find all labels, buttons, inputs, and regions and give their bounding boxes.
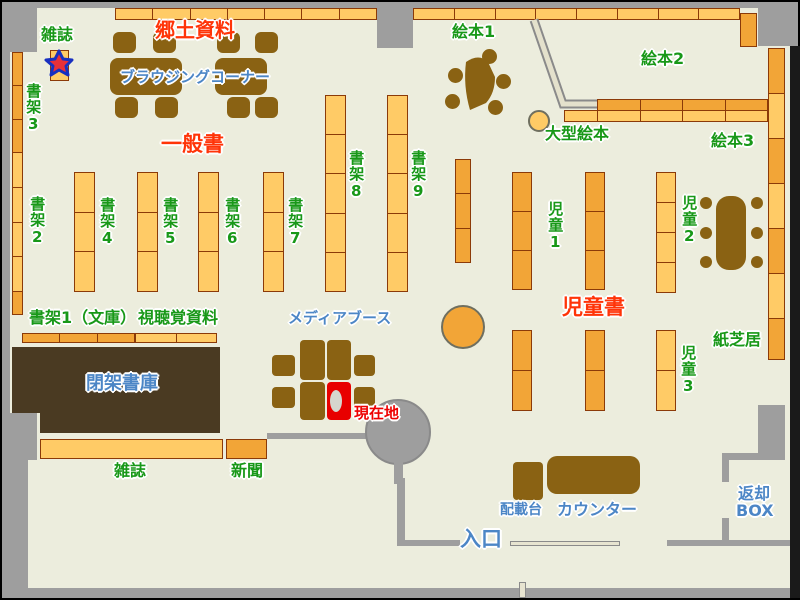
label-ippansho: 一般書 bbox=[161, 133, 224, 156]
label-shoka2: 書架2 bbox=[29, 196, 45, 247]
shelf-row-bunko-seg bbox=[22, 333, 60, 343]
shelf-wall-left-b-seg bbox=[12, 222, 23, 258]
shelf-wall-left-a bbox=[12, 52, 23, 153]
shelf-top-row-endcap-seg bbox=[740, 13, 757, 47]
shelf-top-row-right-seg bbox=[495, 8, 537, 20]
shelf-top-row-right-seg bbox=[576, 8, 618, 20]
shelf-kids-2-lower-seg bbox=[585, 370, 605, 411]
shelf-col-7-seg bbox=[263, 172, 284, 213]
shelf-wall-right-6-seg bbox=[768, 273, 785, 319]
shelf-ehon-divider-bottom-seg bbox=[682, 110, 726, 122]
shelf-ehon-divider-bottom bbox=[597, 110, 768, 122]
shelf-row-bunko-seg bbox=[97, 333, 135, 343]
shelf-col-9-seg bbox=[387, 173, 408, 213]
shelf-col-6-seg bbox=[198, 212, 219, 253]
wall-box-horizontal bbox=[722, 453, 785, 460]
shelf-wall-left-a-seg bbox=[12, 52, 23, 86]
label-jido3: 児童3 bbox=[680, 345, 696, 396]
shelf-magazine-card bbox=[50, 50, 69, 81]
label-media-booth: メディアブース bbox=[288, 310, 391, 326]
wall-left bbox=[2, 2, 10, 460]
shelf-kids-1-lower bbox=[512, 330, 532, 411]
shelf-kids-3-upper-seg bbox=[656, 172, 676, 203]
shelf-col-8-seg bbox=[325, 134, 346, 174]
shelf-top-row-left-seg bbox=[115, 8, 153, 20]
shelf-shimbun bbox=[226, 439, 267, 459]
shelf-row-bunko-seg bbox=[59, 333, 97, 343]
shelf-wall-right-4 bbox=[768, 183, 785, 229]
label-henkyaku-box: BOX bbox=[736, 502, 774, 519]
closed-stacks-area-left bbox=[12, 347, 40, 413]
wall-top-pillar bbox=[377, 2, 413, 48]
wall-entrance-right-v bbox=[722, 518, 729, 544]
browsing-chair bbox=[255, 97, 278, 118]
shelf-wall-right-1 bbox=[768, 48, 785, 94]
label-heika-shoko: 閉架書庫 bbox=[86, 374, 158, 393]
media-booth-cell bbox=[272, 355, 295, 376]
wall-bottom-bar bbox=[2, 588, 798, 598]
shelf-top-row-endcap bbox=[740, 13, 757, 47]
shelf-kids-3-upper-seg bbox=[656, 232, 676, 263]
shelf-kids-2-lower bbox=[585, 330, 605, 411]
shelf-wall-right-5 bbox=[768, 228, 785, 274]
ehon1-stool bbox=[445, 94, 460, 109]
shelf-center-narrow-seg bbox=[455, 193, 471, 228]
shelf-wall-left-b-seg bbox=[12, 256, 23, 292]
wall-box-vertical2 bbox=[722, 460, 729, 482]
shelf-col-7-seg bbox=[263, 212, 284, 253]
shelf-kids-3-upper-seg bbox=[656, 202, 676, 233]
browsing-chair bbox=[227, 97, 250, 118]
kids-stool bbox=[751, 256, 763, 268]
label-kyodo-shiryo: 郷土資料 bbox=[155, 20, 235, 42]
shelf-wall-left-b bbox=[12, 152, 23, 292]
shelf-col-5-seg bbox=[137, 172, 158, 213]
media-booth-cell bbox=[300, 340, 325, 380]
label-shoka9: 書架9 bbox=[410, 150, 426, 201]
ehon1-stool bbox=[496, 74, 511, 89]
shelf-kids-1-upper-seg bbox=[512, 172, 532, 212]
shelf-kids-3-lower bbox=[656, 330, 676, 411]
return-cart bbox=[513, 462, 543, 500]
shelf-magazine-card-seg bbox=[50, 50, 69, 81]
shelf-col-4-seg bbox=[74, 172, 95, 213]
shelf-col-5 bbox=[137, 172, 158, 292]
shelf-center-narrow bbox=[455, 159, 471, 263]
shelf-center-narrow-seg bbox=[455, 159, 471, 194]
shelf-kids-1-upper-seg bbox=[512, 211, 532, 251]
wall-box-vertical bbox=[758, 405, 785, 460]
shelf-wall-right-6 bbox=[768, 273, 785, 319]
label-iriguchi: 入口 bbox=[460, 528, 502, 551]
shelf-wall-left-a-seg bbox=[12, 119, 23, 153]
wall-mid-horizontal bbox=[267, 433, 368, 439]
shelf-ehon-divider-bottom-seg bbox=[597, 110, 641, 122]
kids-stool bbox=[751, 197, 763, 209]
wall-bottomleft bbox=[2, 460, 28, 598]
shelf-kids-2-lower-seg bbox=[585, 330, 605, 371]
label-browsing-corner: ブラウジングコーナー bbox=[120, 69, 270, 85]
shelf-top-row-right bbox=[413, 8, 740, 20]
shelf-wall-left-b-seg bbox=[12, 187, 23, 223]
label-counter: カウンター bbox=[557, 501, 637, 518]
shelf-wall-left-a-seg bbox=[12, 85, 23, 119]
label-shichokaku-shiryo: 視聴覚資料 bbox=[138, 309, 218, 326]
shelf-col-8-seg bbox=[325, 213, 346, 253]
shelf-top-row-right-seg bbox=[617, 8, 659, 20]
shelf-col-9 bbox=[387, 95, 408, 292]
shelf-col-7 bbox=[263, 172, 284, 292]
shelf-kids-1-lower-seg bbox=[512, 370, 532, 411]
shelf-col-4-seg bbox=[74, 251, 95, 292]
shelf-col-9-seg bbox=[387, 134, 408, 174]
shelf-wall-left-c bbox=[12, 291, 23, 315]
shelf-top-row-right-seg bbox=[535, 8, 577, 20]
shelf-col-9-seg bbox=[387, 95, 408, 135]
shelf-col-4 bbox=[74, 172, 95, 292]
ehon1-stool bbox=[482, 49, 497, 64]
shelf-col-8-seg bbox=[325, 252, 346, 292]
shelf-zasshi-bottom-seg bbox=[40, 439, 223, 459]
label-shoka3: 書架3 bbox=[25, 83, 41, 134]
shelf-row-av-seg bbox=[176, 333, 218, 343]
shelf-kids-2-upper-seg bbox=[585, 172, 605, 212]
label-shoka5: 書架5 bbox=[162, 197, 178, 248]
label-jido1: 児童1 bbox=[547, 201, 563, 252]
shelf-kids-3-upper bbox=[656, 172, 676, 293]
shelf-kids-1-lower-seg bbox=[512, 330, 532, 371]
browsing-chair bbox=[255, 32, 278, 53]
shelf-col-4-seg bbox=[74, 212, 95, 253]
label-shoka4: 書架4 bbox=[99, 197, 115, 248]
shelf-wall-left-b-seg bbox=[12, 152, 23, 188]
label-zasshi-top: 雑誌 bbox=[41, 26, 73, 43]
browsing-chair bbox=[155, 97, 178, 118]
shelf-kids-2-upper-seg bbox=[585, 250, 605, 290]
ehon1-stool bbox=[488, 100, 503, 115]
label-ogata-ehon: 大型絵本 bbox=[545, 125, 609, 142]
media-booth-cell bbox=[300, 382, 325, 420]
shelf-col-5-seg bbox=[137, 212, 158, 253]
center-circle-table bbox=[441, 305, 485, 349]
shelf-col-8-seg bbox=[325, 173, 346, 213]
kids-stool bbox=[700, 227, 712, 239]
shelf-kids-3-lower-seg bbox=[656, 370, 676, 411]
shelf-center-narrow-seg bbox=[455, 228, 471, 263]
label-shimbun: 新聞 bbox=[231, 462, 263, 479]
shelf-shimbun-seg bbox=[226, 439, 267, 459]
label-jidosho: 児童書 bbox=[562, 296, 625, 319]
current-location-cell bbox=[327, 382, 351, 420]
kids-stool bbox=[700, 197, 712, 209]
shelf-kids-2-upper bbox=[585, 172, 605, 290]
shelf-col-5-seg bbox=[137, 251, 158, 292]
shelf-wall-right-7 bbox=[768, 318, 785, 360]
entrance-door-slide bbox=[510, 541, 620, 546]
shelf-ehon-divider-bottom-seg bbox=[725, 110, 769, 122]
shelf-col-8 bbox=[325, 95, 346, 292]
shelf-top-row-right-seg bbox=[413, 8, 455, 20]
shelf-top-row-right-seg bbox=[698, 8, 740, 20]
media-booth-cell bbox=[354, 355, 375, 376]
kids-stool bbox=[700, 256, 712, 268]
shelf-wall-right-3 bbox=[768, 138, 785, 184]
shelf-col-9-seg bbox=[387, 252, 408, 292]
shelf-wall-right-4-seg bbox=[768, 183, 785, 229]
shelf-kids-3-upper-seg bbox=[656, 262, 676, 293]
label-henkyaku: 返却 bbox=[738, 485, 770, 502]
shelf-kids-1-upper bbox=[512, 172, 532, 290]
shelf-col-6-seg bbox=[198, 172, 219, 213]
label-haisaidai: 配載台 bbox=[500, 503, 542, 518]
label-ehon1: 絵本1 bbox=[452, 23, 495, 40]
label-genzaichi: 現在地 bbox=[354, 405, 399, 421]
label-ehon3: 絵本3 bbox=[711, 132, 754, 149]
shelf-top-row-left-seg bbox=[339, 8, 377, 20]
shelf-kids-3-lower-seg bbox=[656, 330, 676, 371]
shelf-top-row-left-seg bbox=[301, 8, 339, 20]
label-zasshi-bottom: 雑誌 bbox=[114, 462, 146, 479]
shelf-col-8-seg bbox=[325, 95, 346, 135]
label-shoka1-bunko: 書架1（文庫） bbox=[29, 309, 136, 326]
shelf-wall-right-7-seg bbox=[768, 318, 785, 360]
shelf-wall-left-c-seg bbox=[12, 291, 23, 315]
shelf-row-av-seg bbox=[135, 333, 177, 343]
shelf-wall-right-1-seg bbox=[768, 48, 785, 94]
label-jido2: 児童2 bbox=[681, 195, 697, 246]
shelf-row-av bbox=[135, 333, 217, 343]
shelf-col-6-seg bbox=[198, 251, 219, 292]
shelf-ehon-divider-end-seg bbox=[564, 110, 598, 122]
shelf-col-6 bbox=[198, 172, 219, 292]
ehon1-stool bbox=[448, 68, 463, 83]
shelf-top-row-right-seg bbox=[658, 8, 700, 20]
browsing-chair bbox=[113, 32, 136, 53]
shelf-wall-right-2 bbox=[768, 93, 785, 139]
shelf-col-9-seg bbox=[387, 213, 408, 253]
media-booth-cell bbox=[327, 340, 351, 380]
wall-entrance-left-h bbox=[397, 540, 460, 546]
shelf-wall-right-3-seg bbox=[768, 138, 785, 184]
shelf-top-row-right-seg bbox=[454, 8, 496, 20]
kids-stool bbox=[751, 227, 763, 239]
wall-topright-block bbox=[758, 8, 798, 46]
shelf-zasshi-bottom bbox=[40, 439, 223, 459]
shelf-row-bunko bbox=[22, 333, 135, 343]
shelf-ehon-divider-bottom-seg bbox=[640, 110, 684, 122]
label-shoka7: 書架7 bbox=[287, 197, 303, 248]
browsing-chair bbox=[115, 97, 138, 118]
shelf-wall-right-5-seg bbox=[768, 228, 785, 274]
kids-table bbox=[716, 196, 746, 270]
wall-bottomleft-block bbox=[2, 413, 37, 460]
shelf-kids-2-upper-seg bbox=[585, 211, 605, 251]
media-booth-cell bbox=[272, 387, 295, 408]
wall-entrance-left-v bbox=[397, 478, 405, 546]
wall-right-edge bbox=[790, 46, 800, 598]
shelf-col-7-seg bbox=[263, 251, 284, 292]
counter-desk bbox=[547, 456, 640, 494]
shelf-top-row-left-seg bbox=[264, 8, 302, 20]
shelf-ehon-divider-end bbox=[564, 110, 598, 122]
entrance-outside-post bbox=[519, 582, 526, 598]
label-shoka8: 書架8 bbox=[348, 150, 364, 201]
label-ehon2: 絵本2 bbox=[641, 50, 684, 67]
shelf-wall-right-2-seg bbox=[768, 93, 785, 139]
library-floor-map: 雑誌書架3書架2郷土資料ブラウジングコーナー一般書書架4書架5書架6書架7書架8… bbox=[0, 0, 800, 600]
shelf-kids-1-upper-seg bbox=[512, 250, 532, 290]
label-shoka6: 書架6 bbox=[224, 197, 240, 248]
label-kamishibai: 紙芝居 bbox=[713, 331, 761, 348]
